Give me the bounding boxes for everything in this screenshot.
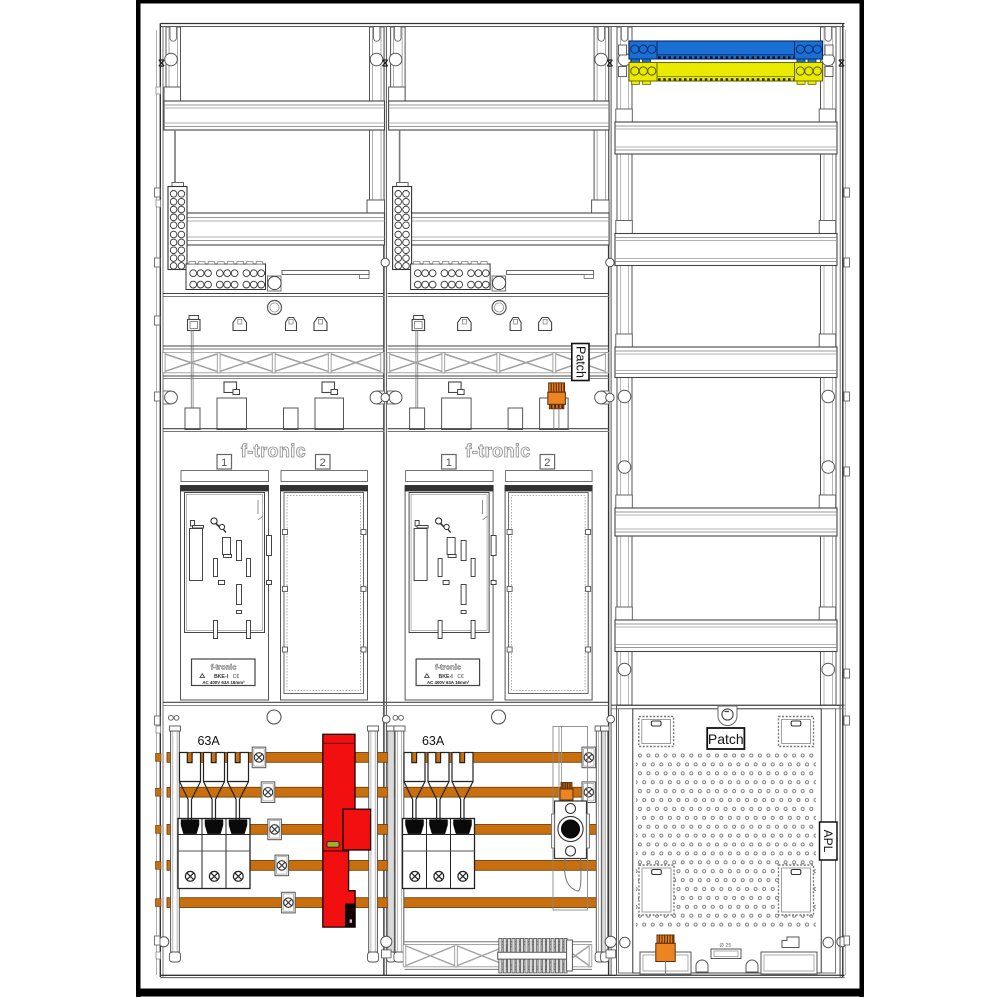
svg-text:1: 1	[221, 457, 227, 469]
svg-text:f-tronic: f-tronic	[435, 663, 461, 672]
svg-text:f-tronic: f-tronic	[241, 441, 306, 461]
svg-text:C€: C€	[233, 674, 240, 680]
svg-text:C€: C€	[457, 674, 464, 680]
svg-text:BKE-I: BKE-I	[439, 674, 454, 680]
svg-text:BKE-I: BKE-I	[214, 674, 229, 680]
svg-text:AC 400V 63A 16mm²: AC 400V 63A 16mm²	[202, 680, 245, 685]
svg-text:2: 2	[544, 457, 550, 469]
svg-text:Ø 25: Ø 25	[720, 943, 732, 949]
svg-text:Patch: Patch	[573, 346, 587, 378]
svg-text:f-tronic: f-tronic	[465, 441, 530, 461]
svg-text:63A: 63A	[422, 734, 445, 748]
svg-text:Patch: Patch	[708, 731, 744, 747]
svg-text:2: 2	[320, 457, 326, 469]
svg-text:f-tronic: f-tronic	[211, 663, 237, 672]
svg-text:1: 1	[446, 457, 452, 469]
svg-text:APL: APL	[821, 830, 835, 853]
svg-text:AC 400V 63A 16mm²: AC 400V 63A 16mm²	[427, 680, 470, 685]
svg-text:63A: 63A	[197, 734, 220, 748]
